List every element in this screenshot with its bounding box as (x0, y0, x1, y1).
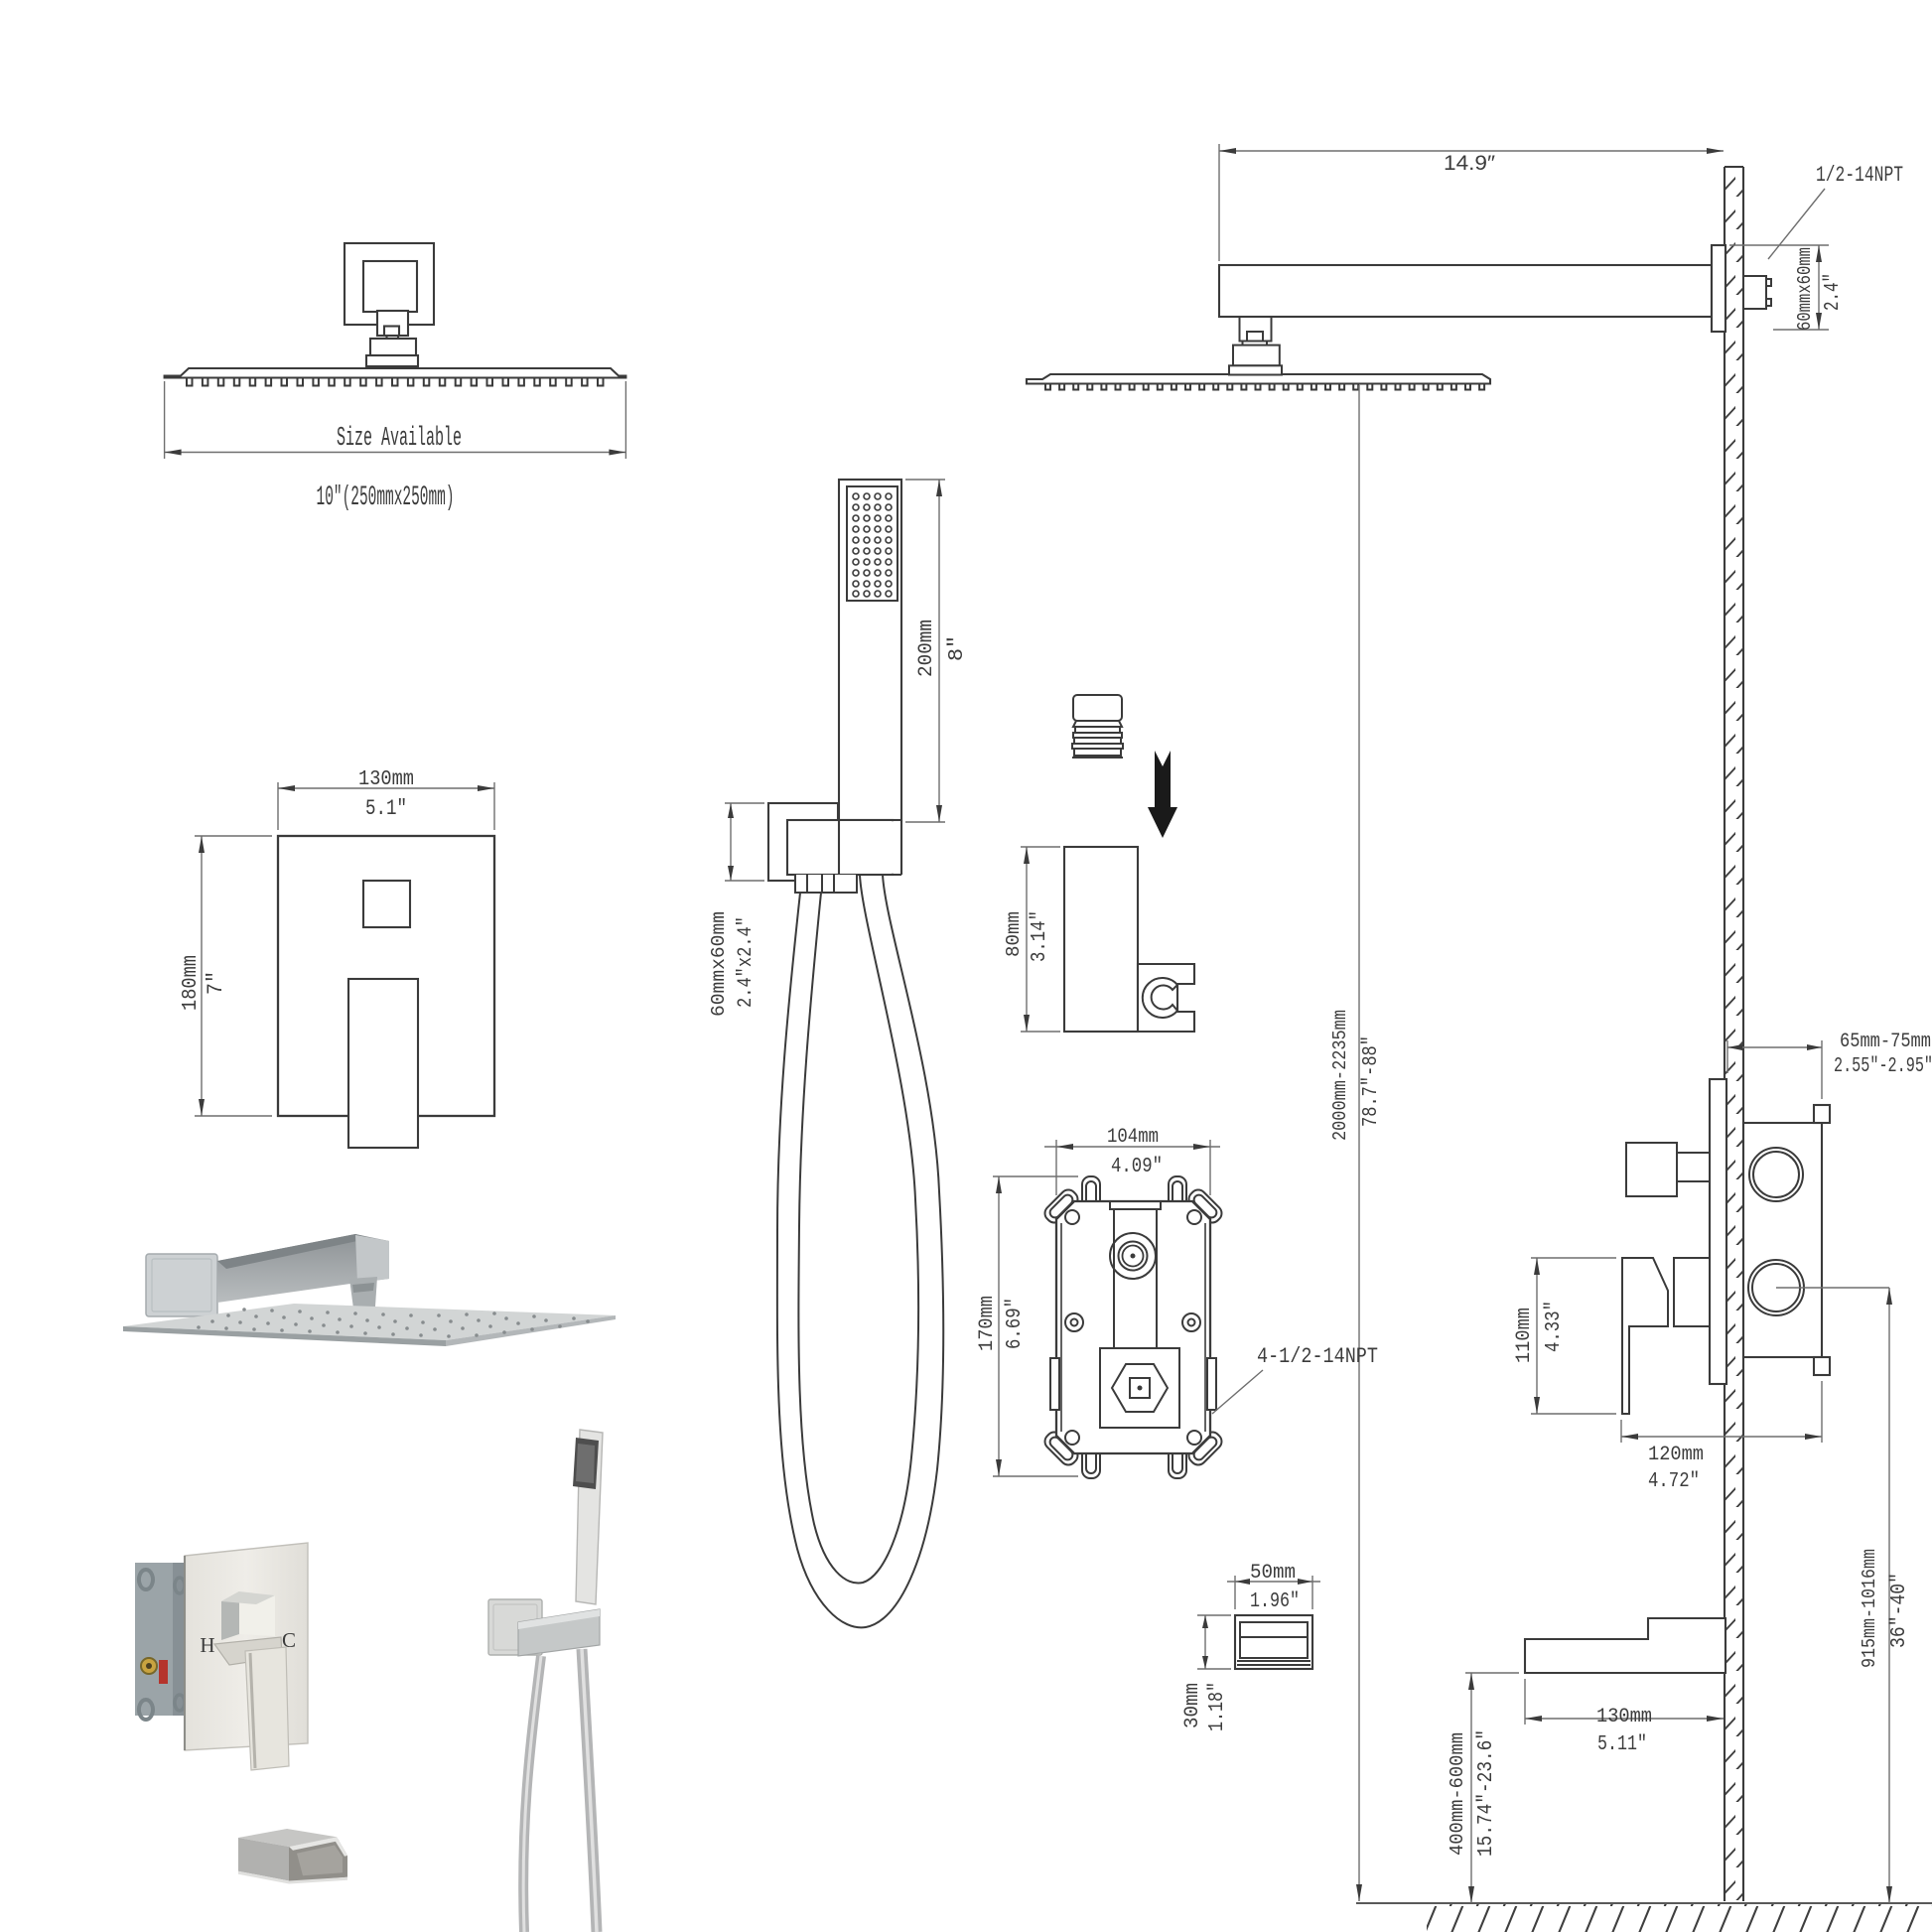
svg-text:2.55″-2.95″: 2.55″-2.95″ (1834, 1055, 1932, 1078)
svg-text:4.09″: 4.09″ (1111, 1156, 1163, 1178)
svg-text:200mm: 200mm (915, 620, 938, 677)
svg-text:170mm: 170mm (976, 1296, 999, 1351)
svg-text:110mm: 110mm (1513, 1308, 1536, 1363)
svg-text:8″: 8″ (946, 635, 969, 661)
svg-text:10″(250mmx250mm): 10″(250mmx250mm) (317, 483, 455, 513)
svg-text:4-1/2-14NPT: 4-1/2-14NPT (1257, 1344, 1378, 1369)
svg-text:H: H (200, 1633, 214, 1657)
svg-text:915mm-1016mm: 915mm-1016mm (1859, 1549, 1880, 1668)
svg-text:30mm: 30mm (1181, 1683, 1204, 1728)
svg-text:60mmx60mm: 60mmx60mm (1794, 247, 1816, 331)
svg-text:2.4″: 2.4″ (1822, 273, 1845, 311)
svg-text:5.1″: 5.1″ (365, 796, 407, 821)
svg-text:60mmx60mm: 60mmx60mm (708, 911, 730, 1017)
svg-text:130mm: 130mm (1596, 1706, 1652, 1728)
svg-text:80mm: 80mm (1003, 911, 1025, 957)
svg-text:36″-40″: 36″-40″ (1888, 1573, 1911, 1648)
svg-text:Size Available: Size Available (337, 424, 462, 454)
svg-text:104mm: 104mm (1107, 1126, 1159, 1149)
svg-text:400mm-600mm: 400mm-600mm (1447, 1732, 1468, 1856)
svg-text:180mm: 180mm (180, 955, 203, 1011)
svg-text:7″: 7″ (204, 971, 228, 995)
svg-text:3.14″: 3.14″ (1029, 910, 1051, 962)
svg-text:120mm: 120mm (1648, 1444, 1704, 1466)
svg-text:78.7″-88″: 78.7″-88″ (1360, 1035, 1383, 1127)
svg-text:1.96″: 1.96″ (1250, 1590, 1300, 1613)
svg-text:4.72″: 4.72″ (1648, 1470, 1700, 1493)
svg-text:4.33″: 4.33″ (1543, 1301, 1566, 1352)
svg-text:65mm-75mm: 65mm-75mm (1840, 1031, 1931, 1053)
svg-text:15.74″-23.6″: 15.74″-23.6″ (1475, 1729, 1498, 1857)
svg-text:6.69″: 6.69″ (1004, 1298, 1027, 1349)
svg-text:1.18″: 1.18″ (1206, 1682, 1229, 1731)
svg-text:2000mm-2235mm: 2000mm-2235mm (1329, 1010, 1351, 1141)
svg-text:14.9″: 14.9″ (1444, 152, 1496, 175)
svg-text:2.4″x2.4″: 2.4″x2.4″ (735, 916, 758, 1008)
svg-text:50mm: 50mm (1250, 1562, 1296, 1585)
svg-text:5.11″: 5.11″ (1597, 1733, 1647, 1756)
svg-text:1/2-14NPT: 1/2-14NPT (1816, 163, 1903, 188)
svg-text:130mm: 130mm (358, 768, 414, 791)
